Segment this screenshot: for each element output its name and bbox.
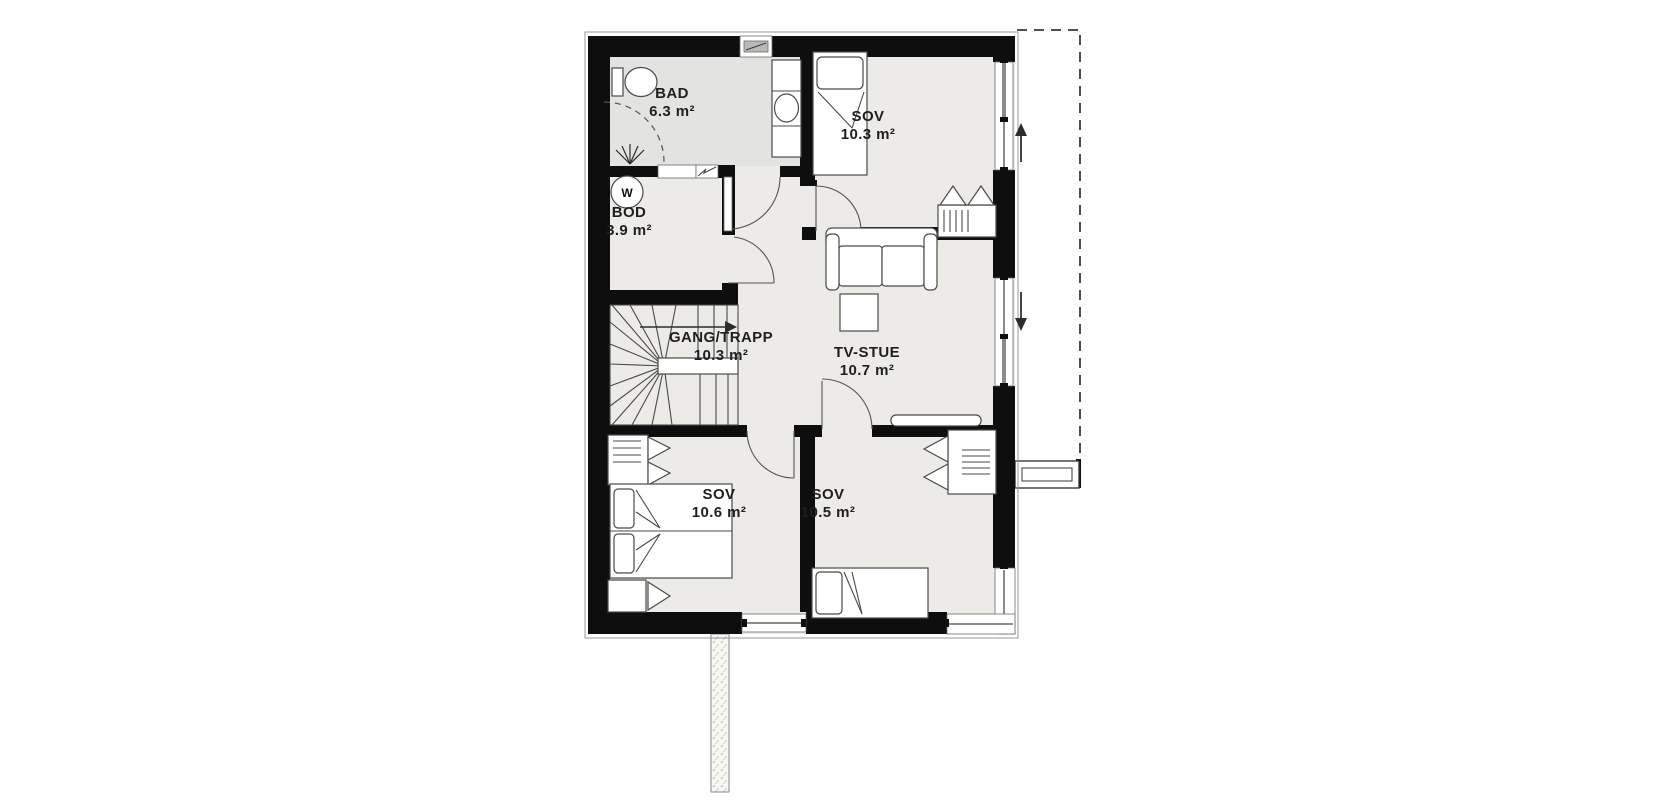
arrow-up-icon [1015,123,1027,162]
room-label-tv-stue: TV-STUE 10.7 m² [834,344,900,379]
bed-symbol-sov3 [812,568,928,618]
roof-outline-dashed [1017,30,1081,488]
washbasin-symbol [772,60,801,157]
room-area: 10.6 m² [692,504,747,521]
support-beam [1015,461,1079,488]
hot-water-label: W [621,186,633,200]
floor-plan-drawing: W [0,0,1670,800]
stairs-symbol [610,305,738,425]
table-symbol [840,294,878,331]
room-area: 10.7 m² [840,362,895,379]
room-area: 10.5 m² [801,504,856,521]
escape-arrows [1015,123,1027,331]
room-name: SOV [852,108,885,125]
room-label-bod: BOD 3.9 m² [606,204,652,239]
room-name: GANG/TRAPP [669,329,773,346]
floor-plan-page: W [0,0,1670,800]
arrow-down-icon [1015,292,1027,331]
room-name: SOV [703,486,736,503]
room-area: 10.3 m² [694,347,749,364]
room-name: SOV [812,486,845,503]
wall-cabinet-symbols [658,165,718,178]
sofa-symbol [826,228,937,290]
room-name: TV-STUE [834,344,900,361]
foundation-wall-below [711,634,729,792]
room-area: 6.3 m² [649,103,695,120]
room-name: BAD [655,85,689,102]
tv-bench-symbol [891,415,981,426]
room-area: 10.3 m² [841,126,896,143]
room-name: BOD [612,204,647,221]
room-label-bad: BAD 6.3 m² [649,85,695,120]
toilet-symbol [612,68,657,97]
room-area: 3.9 m² [606,222,652,239]
vent-window [740,36,772,57]
